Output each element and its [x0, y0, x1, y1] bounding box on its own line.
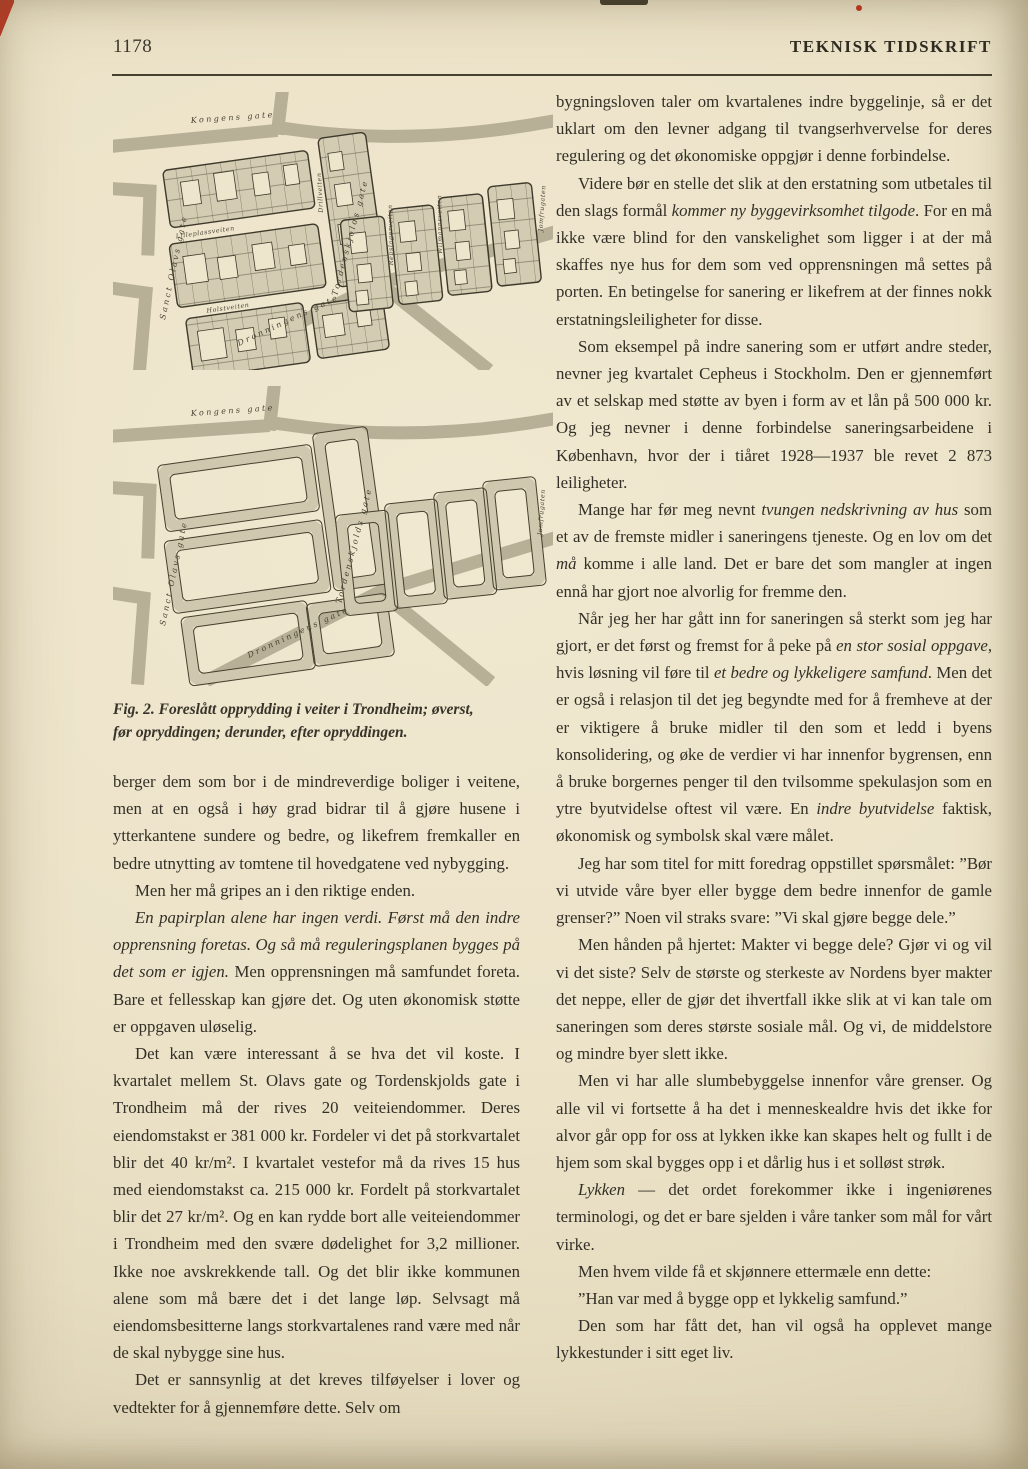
- figure-2: Lilleplassveiten Holstveiten Drillveiten: [113, 92, 553, 744]
- text-run: Mange har før meg nevnt: [578, 500, 761, 519]
- paragraph: Men her må gripes an i den riktige enden…: [113, 877, 520, 904]
- scan-artifact-top-mark: [600, 0, 648, 5]
- scan-artifact-red-dot: [856, 5, 862, 11]
- map-before-clearance: Lilleplassveiten Holstveiten Drillveiten: [113, 92, 553, 370]
- text-run: . Men det er også i relasjon til det jeg…: [556, 663, 992, 818]
- paragraph: Som eksempel på indre sanering som er ut…: [556, 333, 992, 496]
- text-run: bygningsloven taler om kvartalenes indre…: [556, 92, 992, 165]
- text-run: ”Han var med å bygge opp et lykkelig sam…: [578, 1289, 907, 1308]
- left-column-text: berger dem som bor i de mindreverdige bo…: [113, 768, 520, 1421]
- page-number: 1178: [113, 36, 152, 58]
- italic-text: indre byutvidelse: [816, 799, 934, 818]
- street-west-corner-1: [118, 488, 150, 552]
- paragraph: Lykken — det ordet forekommer ikke i ing…: [556, 1176, 992, 1258]
- paragraph: Når jeg her har gått inn for saneringen …: [556, 605, 992, 850]
- italic-text: kommer ny byggevirksomhet tilgode: [672, 201, 915, 220]
- scan-artifact-red-corner: [0, 0, 14, 36]
- text-run: Men hånden på hjertet: Makter vi begge d…: [556, 935, 992, 1063]
- paragraph: bygningsloven taler om kvartalenes indre…: [556, 88, 992, 170]
- text-run: komme i alle land. Det er bare det som m…: [556, 554, 992, 600]
- two-column-layout: Lilleplassveiten Holstveiten Drillveiten: [113, 88, 992, 1421]
- italic-text: tvungen nedskrivning av hus: [761, 500, 958, 519]
- street-label-kongens: Kongens gate: [190, 110, 275, 125]
- right-column-text: bygningsloven taler om kvartalenes indre…: [556, 88, 992, 1421]
- caption-line-2: før opryddingen; derunder, efter opryddi…: [113, 721, 543, 744]
- street-cross-north: [278, 94, 282, 128]
- street-west-corner-2: [118, 289, 146, 365]
- page-header: 1178 TEKNISK TIDSKRIFT: [113, 36, 992, 64]
- paragraph: Jeg har som titel for mitt foredrag opps…: [556, 850, 992, 932]
- paragraph: berger dem som bor i de mindreverdige bo…: [113, 768, 520, 877]
- paragraph: ”Han var med å bygge opp et lykkelig sam…: [556, 1285, 992, 1312]
- text-run: Den som har fått det, han vil også ha op…: [556, 1316, 992, 1362]
- paragraph: En papirplan alene har ingen verdi. Førs…: [113, 904, 520, 1040]
- street-kongens-gate-east: [281, 419, 553, 433]
- caption-line-1: Fig. 2. Foreslått opprydding i veiter i …: [113, 698, 543, 721]
- street-label-kongens: Kongens gate: [190, 403, 275, 418]
- map-after-clearance: Jomfrugaten Kongens gate Sanct Olavs gat…: [113, 386, 553, 686]
- street-west-corner-1: [118, 189, 150, 249]
- paragraph: Det er sannsynlig at det kreves tilføyel…: [113, 1366, 520, 1420]
- street-label-jomfrugaten: Jomfrugaten: [537, 489, 547, 538]
- left-column: Lilleplassveiten Holstveiten Drillveiten: [113, 88, 520, 1421]
- paragraph: Den som har fått det, han vil også ha op…: [556, 1312, 992, 1366]
- text-run: Men hvem vilde få et skjønnere ettermæle…: [578, 1262, 931, 1281]
- veit-label-repslager: Repslagerveiten: [387, 204, 395, 266]
- header-rule: [112, 74, 992, 76]
- veit-label-wilmanns: Wilmannsveiten: [436, 195, 444, 255]
- paragraph: Videre bør en stelle det slik at den ers…: [556, 170, 992, 333]
- text-run: Men vi har alle slumbebyggelse innenfor …: [556, 1071, 992, 1172]
- text-run: berger dem som bor i de mindreverdige bo…: [113, 772, 520, 873]
- journal-title: TEKNISK TIDSKRIFT: [790, 37, 992, 57]
- street-kongens-gate-east: [289, 121, 553, 136]
- italic-text: et bedre og lykkeligere samfund: [714, 663, 928, 682]
- street-west-corner-2: [118, 594, 144, 678]
- street-kongens-gate: [115, 131, 271, 146]
- paragraph: Mange har før meg nevnt tvungen nedskriv…: [556, 496, 992, 605]
- street-label-jomfrugaten: Jomfrugaten: [537, 185, 547, 234]
- journal-page: 1178 TEKNISK TIDSKRIFT: [0, 0, 1028, 1469]
- paragraph: Men hvem vilde få et skjønnere ettermæle…: [556, 1258, 992, 1285]
- text-run: Det er sannsynlig at det kreves tilføyel…: [113, 1370, 520, 1416]
- text-run: Det kan være interessant å se hva det vi…: [113, 1044, 520, 1362]
- italic-text: Lykken: [578, 1180, 625, 1199]
- text-run: Men her må gripes an i den riktige enden…: [135, 881, 415, 900]
- paragraph: Men vi har alle slumbebyggelse innenfor …: [556, 1067, 992, 1176]
- italic-text: en stor sosial oppgave: [836, 636, 988, 655]
- text-run: Jeg har som titel for mitt foredrag opps…: [556, 854, 992, 927]
- figure-caption: Fig. 2. Foreslått opprydding i veiter i …: [113, 698, 543, 744]
- paragraph: Men hånden på hjertet: Makter vi begge d…: [556, 931, 992, 1067]
- paragraph: Det kan være interessant å se hva det vi…: [113, 1040, 520, 1366]
- text-run: Som eksempel på indre sanering som er ut…: [556, 337, 992, 492]
- italic-text: må: [556, 554, 577, 573]
- street-kongens-gate: [115, 426, 263, 436]
